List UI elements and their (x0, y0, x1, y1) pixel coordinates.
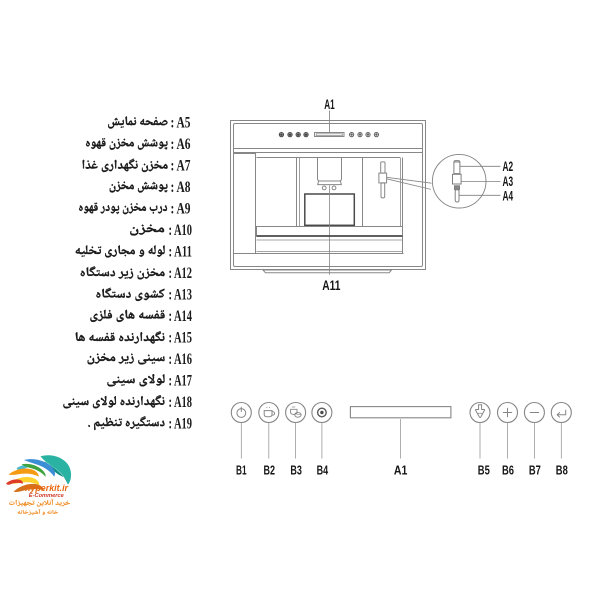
svg-text:B6: B6 (502, 462, 514, 477)
svg-text:: A6: : A6 (171, 136, 191, 153)
svg-text:A4: A4 (503, 187, 514, 203)
svg-text:B7: B7 (529, 462, 541, 477)
svg-text:: A9: : A9 (171, 201, 191, 218)
svg-text:: A10: : A10 (169, 222, 193, 239)
svg-text:: A17: : A17 (169, 373, 193, 390)
svg-text:B4: B4 (317, 462, 329, 477)
svg-text:: A15: : A15 (169, 330, 193, 347)
svg-text:: A18: : A18 (169, 394, 193, 411)
svg-text:A1: A1 (394, 462, 408, 477)
svg-text:A11: A11 (322, 277, 340, 293)
svg-text:: A11: : A11 (169, 244, 193, 261)
svg-text:A2: A2 (503, 158, 514, 174)
svg-text:B2: B2 (264, 462, 276, 477)
svg-text:: A14: : A14 (169, 308, 193, 325)
svg-text:: A5: : A5 (171, 115, 191, 132)
svg-text:A1: A1 (324, 96, 335, 112)
svg-text:B5: B5 (478, 462, 490, 477)
svg-text:: A19: : A19 (169, 416, 193, 433)
svg-text:: A13: : A13 (169, 287, 193, 304)
svg-text:: A12: : A12 (169, 265, 193, 282)
svg-text:B1: B1 (236, 462, 247, 477)
svg-text:: A16: : A16 (169, 351, 193, 368)
svg-text:B3: B3 (290, 462, 302, 477)
svg-text:E-Commerce: E-Commerce (29, 493, 64, 499)
svg-text:: A7: : A7 (171, 158, 191, 175)
svg-text:: A8: : A8 (171, 179, 191, 196)
svg-text:B8: B8 (556, 462, 568, 477)
